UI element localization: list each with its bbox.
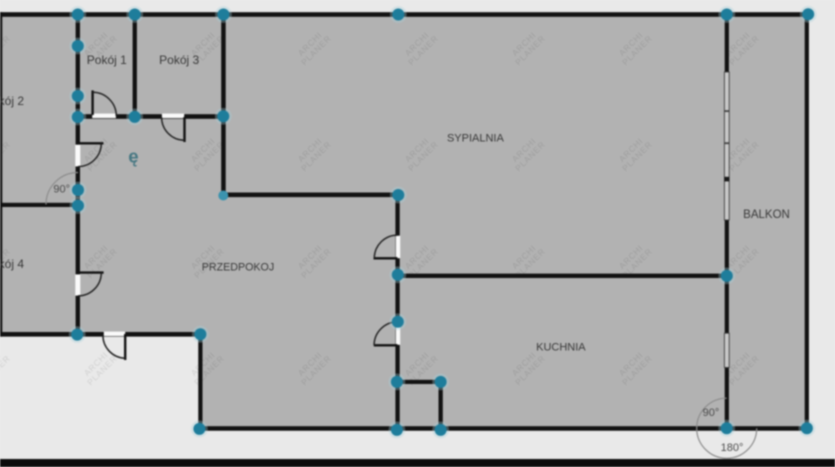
svg-text:Pokój 1: Pokój 1 bbox=[87, 53, 127, 67]
svg-text:KUCHNIA: KUCHNIA bbox=[536, 342, 586, 354]
svg-text:PRZEDPOKOJ: PRZEDPOKOJ bbox=[202, 262, 274, 274]
svg-text:90°: 90° bbox=[53, 183, 70, 195]
svg-text:Pokój 2: Pokój 2 bbox=[0, 94, 24, 108]
svg-text:BALKON: BALKON bbox=[743, 209, 790, 221]
svg-text:ę: ę bbox=[128, 146, 138, 167]
svg-text:Pokój 4: Pokój 4 bbox=[0, 257, 24, 271]
svg-text:90°: 90° bbox=[703, 407, 720, 419]
svg-text:180°: 180° bbox=[721, 442, 744, 454]
svg-text:Pokój 3: Pokój 3 bbox=[159, 53, 199, 67]
svg-text:SYPIALNIA: SYPIALNIA bbox=[447, 133, 505, 145]
